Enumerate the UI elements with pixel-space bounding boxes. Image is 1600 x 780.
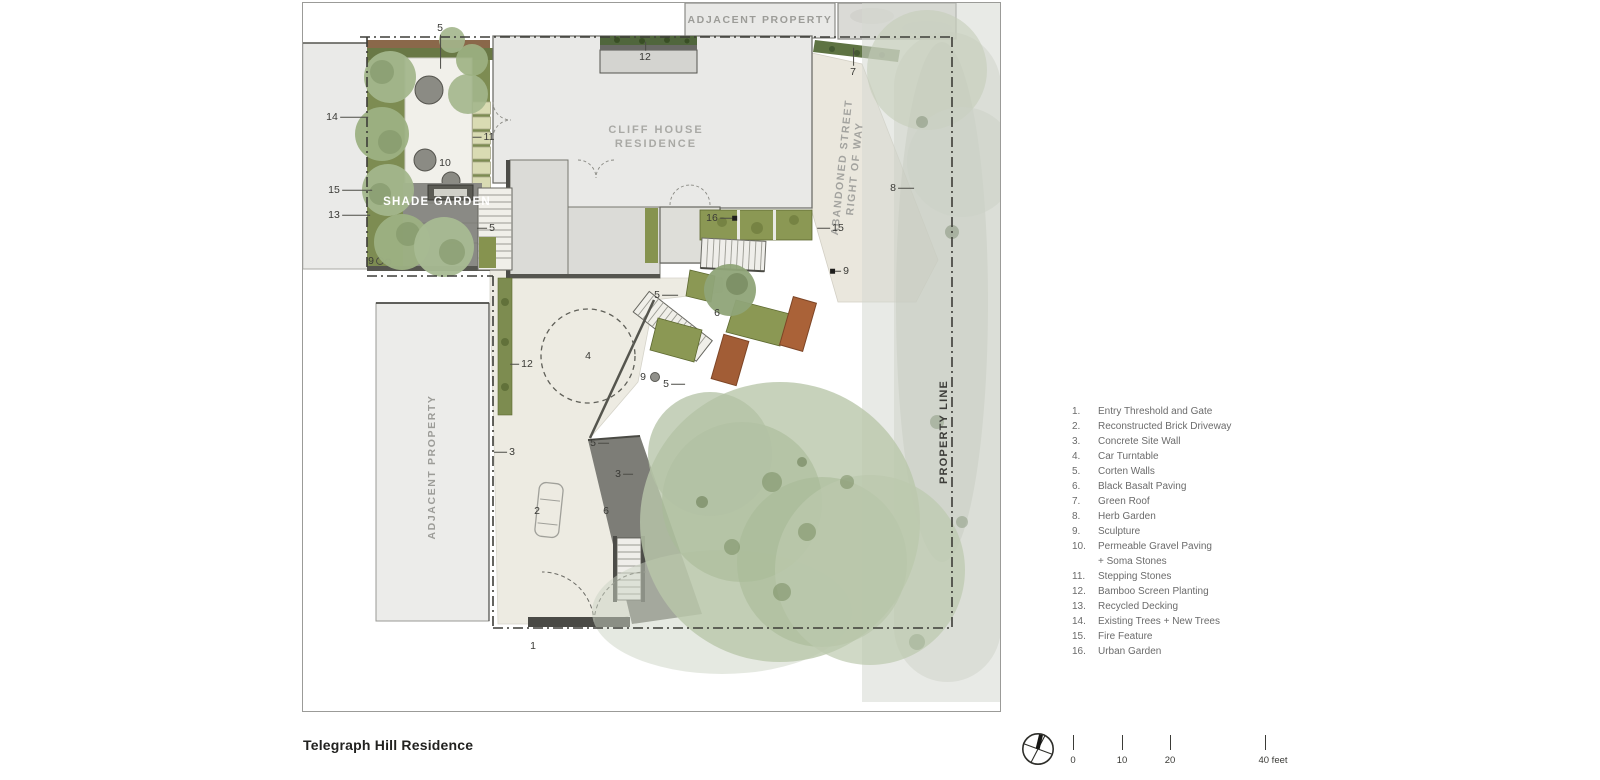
scale-tick-label: 0 [1070, 755, 1075, 766]
scale-tick [1265, 735, 1266, 750]
scale-tick [1170, 735, 1171, 750]
scale-tick-label: 20 [1165, 755, 1176, 766]
scale-bar: 0102040 feet [0, 0, 1600, 780]
scale-tick [1122, 735, 1123, 750]
north-arrow-icon [1020, 731, 1056, 767]
shade-garden-label: SHADE GARDEN [383, 196, 491, 208]
scale-tick-label: 10 [1117, 755, 1128, 766]
scale-tick-label: 40 feet [1258, 755, 1287, 766]
scale-tick [1073, 735, 1074, 750]
site-plan-sheet: ADJACENT PROPERTY ADJACENT PROPERTY CLIF… [0, 0, 1600, 780]
